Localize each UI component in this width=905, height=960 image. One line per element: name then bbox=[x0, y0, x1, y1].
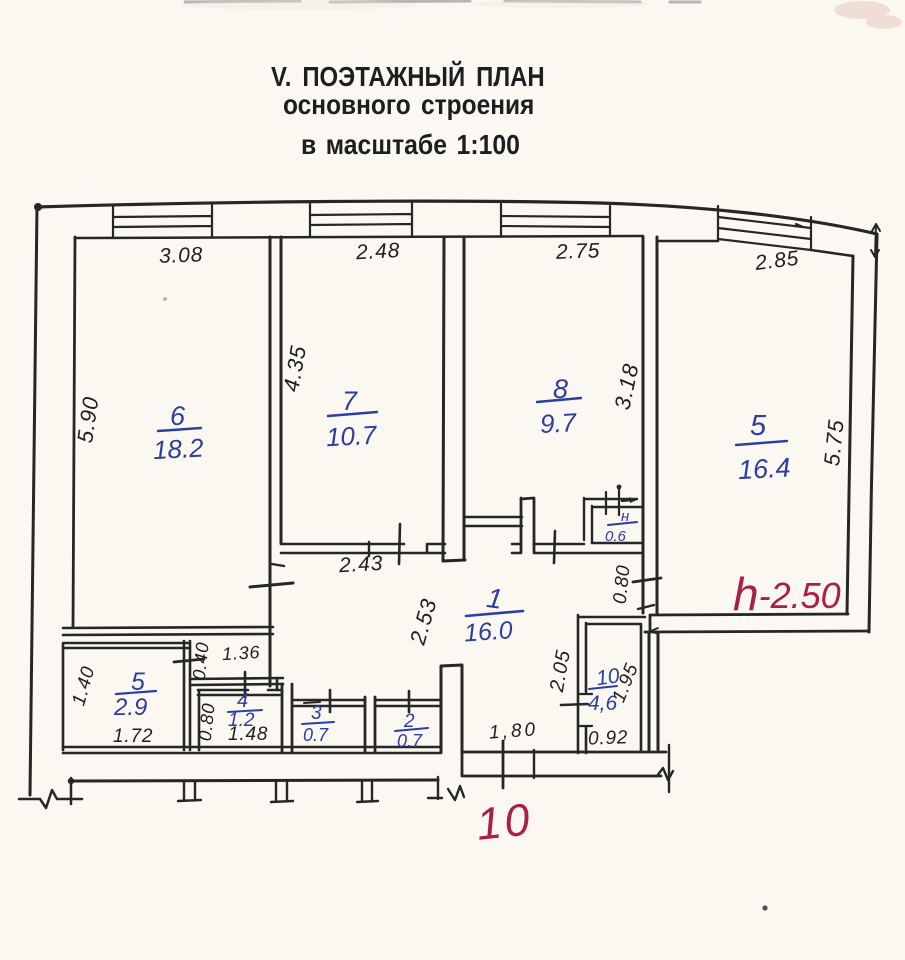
svg-text:5.75: 5.75 bbox=[819, 418, 849, 467]
svg-text:7: 7 bbox=[342, 386, 358, 416]
svg-text:0.7: 0.7 bbox=[397, 731, 423, 751]
svg-text:4: 4 bbox=[237, 690, 248, 712]
svg-text:0.40: 0.40 bbox=[189, 641, 213, 681]
svg-text:1.36: 1.36 bbox=[222, 642, 261, 664]
svg-text:h-2.50: h-2.50 bbox=[733, 568, 841, 620]
svg-text:16.4: 16.4 bbox=[737, 452, 791, 485]
svg-text:0.7: 0.7 bbox=[303, 725, 329, 745]
svg-text:0.80: 0.80 bbox=[610, 564, 635, 605]
svg-text:3.08: 3.08 bbox=[159, 243, 204, 268]
svg-text:3.18: 3.18 bbox=[609, 361, 643, 412]
svg-text:0.92: 0.92 bbox=[588, 727, 629, 749]
svg-text:2.43: 2.43 bbox=[337, 552, 383, 577]
svg-text:2.05: 2.05 bbox=[546, 648, 575, 694]
svg-text:16.0: 16.0 bbox=[463, 616, 514, 647]
svg-text:5: 5 bbox=[750, 410, 767, 442]
svg-text:10: 10 bbox=[474, 793, 535, 850]
svg-text:9.7: 9.7 bbox=[539, 407, 578, 439]
svg-text:0.80: 0.80 bbox=[195, 702, 219, 742]
svg-text:2.9: 2.9 bbox=[113, 694, 147, 721]
svg-text:2.53: 2.53 bbox=[405, 595, 442, 648]
svg-text:1,80: 1,80 bbox=[488, 719, 538, 743]
svg-text:0.6: 0.6 bbox=[605, 528, 627, 545]
svg-text:10.7: 10.7 bbox=[325, 420, 379, 453]
svg-text:2.75: 2.75 bbox=[555, 239, 601, 264]
svg-text:5.90: 5.90 bbox=[72, 395, 103, 445]
svg-text:4.35: 4.35 bbox=[278, 343, 311, 393]
svg-text:2.48: 2.48 bbox=[354, 239, 400, 264]
svg-text:2.85: 2.85 bbox=[753, 247, 801, 275]
svg-text:18.2: 18.2 bbox=[152, 432, 205, 465]
svg-text:1.40: 1.40 bbox=[68, 664, 99, 708]
svg-text:1: 1 bbox=[485, 582, 505, 615]
svg-text:1.48: 1.48 bbox=[228, 724, 268, 745]
svg-text:1.72: 1.72 bbox=[113, 726, 153, 747]
svg-text:3: 3 bbox=[311, 703, 322, 724]
svg-text:6: 6 bbox=[170, 401, 186, 431]
